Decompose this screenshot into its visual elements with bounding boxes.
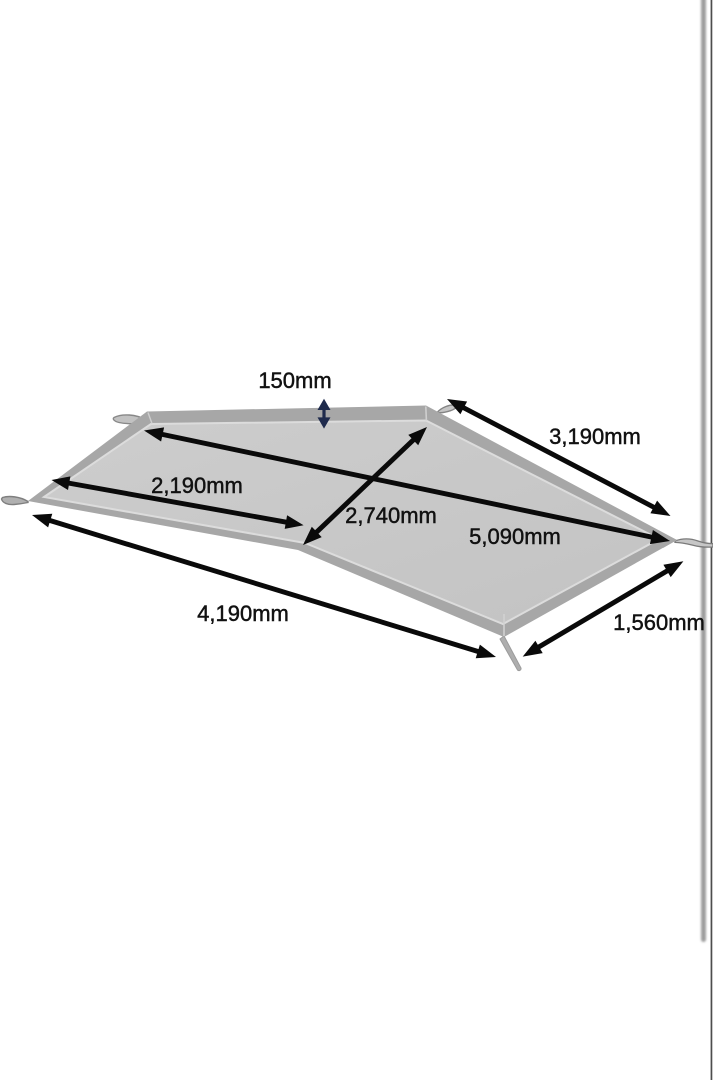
svg-text:3,190mm: 3,190mm bbox=[549, 424, 641, 449]
svg-text:2,190mm: 2,190mm bbox=[151, 473, 243, 498]
svg-text:4,190mm: 4,190mm bbox=[197, 601, 289, 626]
svg-text:1,560mm: 1,560mm bbox=[613, 610, 705, 635]
svg-text:5,090mm: 5,090mm bbox=[469, 524, 561, 549]
svg-text:2,740mm: 2,740mm bbox=[345, 503, 437, 528]
svg-text:150mm: 150mm bbox=[258, 368, 331, 393]
